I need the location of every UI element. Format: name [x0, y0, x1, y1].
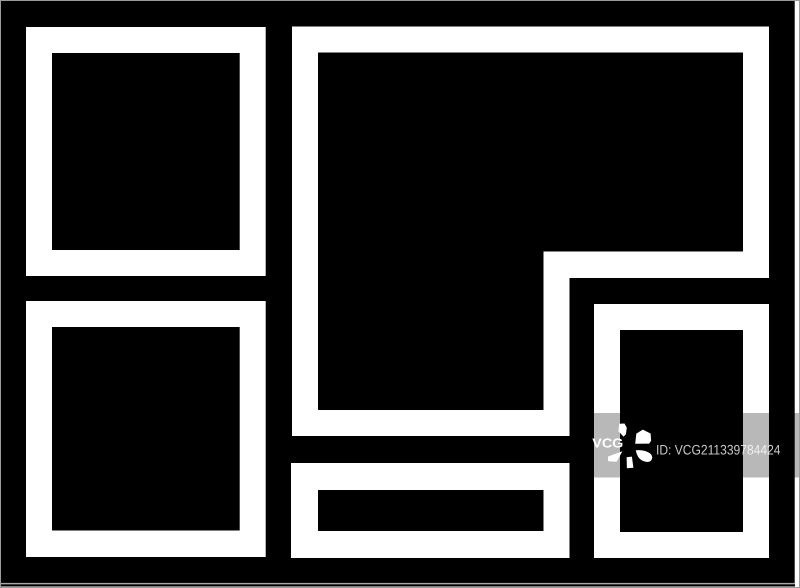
svg-text:ID: VCG211339784424: ID: VCG211339784424 — [656, 443, 781, 458]
svg-text:VCG: VCG — [592, 435, 623, 450]
